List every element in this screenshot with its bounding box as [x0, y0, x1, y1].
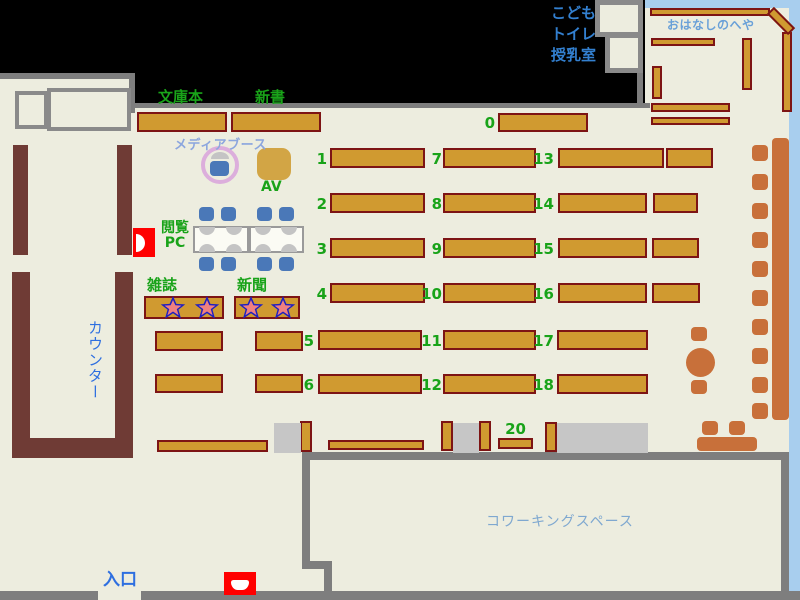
chair	[279, 207, 294, 221]
shelf-number-14: 14	[526, 194, 554, 214]
stool	[752, 348, 768, 364]
bookshelf	[155, 331, 223, 351]
toilet-connector-wall	[637, 70, 643, 108]
shelf-number-15: 15	[526, 239, 554, 259]
bookshelf-8	[443, 193, 536, 213]
shelf-number-12: 12	[414, 375, 442, 395]
shelf-number-7: 7	[418, 149, 442, 169]
story-room-bookshelf	[651, 103, 730, 112]
bookshelf-14	[653, 193, 698, 213]
coworking-right-wall	[781, 452, 789, 599]
bookshelf-16	[652, 283, 700, 303]
chair	[221, 257, 236, 271]
label-shinbun: 新聞	[237, 274, 267, 295]
stool	[752, 377, 768, 393]
bookshelf-7	[443, 148, 536, 168]
window-bench	[772, 138, 789, 420]
library-floor-map: 文庫本 新書 メディアブース AV 閲覧 PC 雑誌 新聞 カウンター 入口 コ…	[0, 0, 800, 600]
bookshelf-18	[557, 374, 648, 394]
label-etsuran-line2: PC	[158, 236, 192, 251]
label-shinsho: 新書	[255, 86, 285, 107]
shelf-number-5: 5	[290, 331, 314, 351]
shelf-number-2: 2	[303, 194, 327, 214]
bookshelf-17	[557, 330, 648, 350]
round-table	[686, 348, 715, 377]
stool	[752, 290, 768, 306]
label-etsuran-line1: 閲覧	[158, 221, 192, 236]
low-table	[453, 423, 479, 453]
staff-top-wall	[0, 73, 135, 79]
bookshelf	[479, 421, 491, 451]
shelf-number-0: 0	[471, 113, 495, 133]
stool	[729, 421, 745, 435]
coworking-notch-wall-v	[324, 561, 332, 600]
toilet-room	[595, 0, 643, 37]
stool	[752, 319, 768, 335]
bookshelf-15	[652, 238, 699, 258]
label-counter: カウンター	[85, 320, 106, 400]
bookshelf	[231, 112, 321, 132]
media-booth-desk	[211, 152, 229, 159]
stool	[752, 174, 768, 190]
media-booth-seat	[210, 161, 229, 176]
stool	[752, 261, 768, 277]
entrance-opening	[98, 591, 141, 600]
shelf-number-16: 16	[526, 284, 554, 304]
chair	[221, 207, 236, 221]
low-table	[274, 423, 301, 453]
counter-pillar	[13, 145, 28, 255]
bookshelf	[155, 374, 223, 393]
bookshelf-15	[558, 238, 647, 258]
shelf-number-3: 3	[303, 239, 327, 259]
nursing-room	[605, 33, 643, 73]
stool	[702, 421, 718, 435]
bookshelf-13	[666, 148, 713, 168]
label-entrance: 入口	[103, 565, 137, 590]
bookshelf-12	[443, 374, 536, 394]
stool	[752, 145, 768, 161]
bookshelf-16	[558, 283, 647, 303]
story-room-top-wall	[645, 0, 800, 8]
bookshelf-9	[443, 238, 536, 258]
story-room-bookshelf	[651, 38, 715, 46]
label-kids: こども	[540, 3, 596, 24]
label-bunkobon: 文庫本	[158, 86, 203, 107]
bookshelf-4	[330, 283, 425, 303]
story-room-bookshelf	[651, 117, 730, 125]
stool	[752, 203, 768, 219]
stool	[752, 232, 768, 248]
staff-desk-large	[47, 88, 131, 131]
bookshelf-14	[558, 193, 647, 213]
bottom-wall-left	[0, 591, 98, 600]
bookshelf	[328, 440, 424, 450]
bookshelf-2	[330, 193, 425, 213]
label-etsuran-pc: 閲覧 PC	[158, 221, 192, 251]
bookshelf-11	[443, 330, 536, 350]
counter-left	[12, 272, 30, 458]
label-toilet: トイレ	[540, 24, 596, 45]
label-media-booth: メディアブース	[174, 134, 267, 153]
story-room-bookshelf	[652, 66, 662, 99]
shelf-number-4: 4	[303, 284, 327, 304]
bookshelf-13	[558, 148, 664, 168]
stool	[691, 327, 707, 341]
label-nursing: 授乳室	[540, 45, 596, 66]
counter-bottom	[12, 438, 133, 458]
stool	[752, 403, 768, 419]
chair	[279, 257, 294, 271]
story-room-bookshelf	[742, 38, 752, 90]
bookshelf-20	[498, 438, 533, 449]
counter-right	[115, 272, 133, 458]
shelf-number-18: 18	[526, 375, 554, 395]
bookshelf-1	[330, 148, 425, 168]
chair	[257, 207, 272, 221]
shelf-number-20: 20	[498, 419, 533, 439]
table	[697, 437, 757, 451]
chair	[257, 257, 272, 271]
shelf-number-13: 13	[526, 149, 554, 169]
bookshelf-10	[443, 283, 536, 303]
bookshelf-3	[330, 238, 425, 258]
bookshelf	[157, 440, 268, 452]
coworking-top-wall	[302, 452, 789, 460]
label-kids-block: こども トイレ 授乳室	[540, 3, 596, 66]
shelf-number-8: 8	[418, 194, 442, 214]
story-room-bookshelf	[782, 32, 792, 112]
bookshelf-0	[498, 113, 588, 132]
story-room-bookshelf	[650, 8, 770, 16]
shelf-number-17: 17	[526, 331, 554, 351]
shelf-number-9: 9	[418, 239, 442, 259]
bookshelf	[441, 421, 453, 451]
bookshelf-6	[318, 374, 422, 394]
label-story-room: おはなしのへや	[667, 16, 755, 33]
label-coworking: コワーキングスペース	[486, 511, 634, 531]
label-zasshi: 雑誌	[147, 274, 177, 295]
stool	[691, 380, 707, 394]
shelf-number-11: 11	[414, 331, 442, 351]
chair	[199, 257, 214, 271]
counter-pillar	[117, 145, 132, 255]
shelf-number-1: 1	[303, 149, 327, 169]
chair	[199, 207, 214, 221]
bookshelf	[300, 421, 312, 452]
label-av: AV	[261, 179, 282, 195]
shelf-number-10: 10	[414, 284, 442, 304]
shelf-number-6: 6	[290, 375, 314, 395]
main-top-wall	[129, 103, 650, 108]
coworking-left-wall	[302, 452, 310, 569]
staff-desk-small	[15, 91, 48, 129]
bookshelf-5	[318, 330, 422, 350]
bookshelf	[137, 112, 227, 132]
bookshelf	[545, 422, 557, 452]
low-table	[557, 423, 648, 453]
